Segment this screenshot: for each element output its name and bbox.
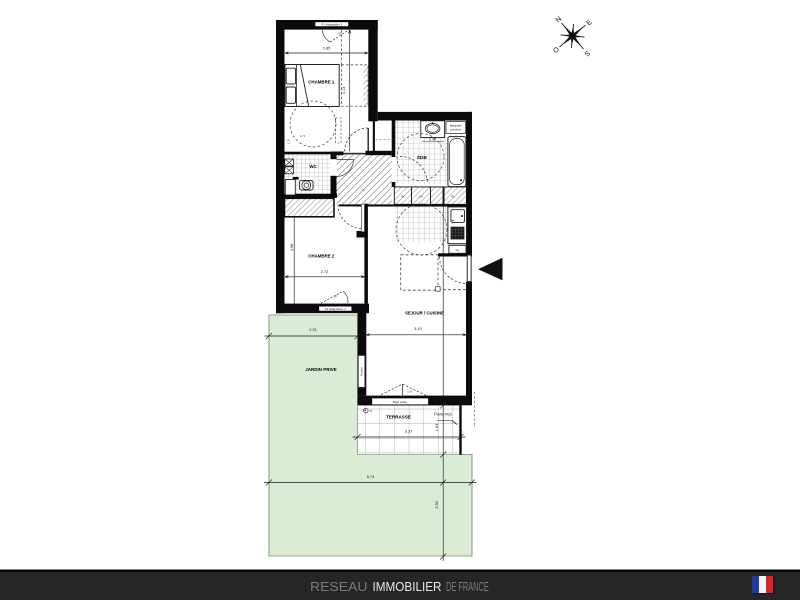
svg-text:CHAMBRE 2: CHAMBRE 2: [308, 254, 335, 259]
svg-text:F1 Adaptation 1: F1 Adaptation 1: [321, 23, 342, 27]
svg-text:2.48: 2.48: [429, 138, 435, 142]
svg-text:penderie: penderie: [450, 128, 461, 132]
svg-text:CU: CU: [419, 195, 423, 199]
svg-text:JARDIN PRIVE: JARDIN PRIVE: [305, 367, 337, 372]
svg-text:SDB: SDB: [417, 155, 428, 161]
svg-text:2.91: 2.91: [309, 328, 316, 332]
svg-text:CHAMBRE 1: CHAMBRE 1: [308, 79, 335, 84]
svg-text:Fenêtre: Fenêtre: [359, 366, 363, 375]
svg-text:PL: PL: [401, 195, 405, 199]
svg-text:1.37: 1.37: [286, 138, 290, 144]
svg-text:IMMOBILIER: IMMOBILIER: [373, 580, 442, 594]
svg-text:6.74: 6.74: [367, 475, 374, 479]
svg-text:RESEAU: RESEAU: [310, 580, 368, 594]
svg-text:F2 Adaptation 1: F2 Adaptation 1: [325, 307, 346, 311]
svg-text:PL: PL: [451, 195, 455, 199]
svg-text:Barquette: Barquette: [450, 123, 462, 127]
svg-text:WC: WC: [309, 164, 317, 169]
svg-text:1.63: 1.63: [435, 424, 439, 431]
svg-text:Fg: Fg: [456, 248, 460, 252]
svg-text:3.50: 3.50: [435, 501, 439, 508]
svg-text:3.10: 3.10: [414, 327, 421, 331]
svg-text:1.80: 1.80: [408, 390, 414, 394]
svg-text:2.85: 2.85: [323, 47, 330, 51]
svg-text:4.13: 4.13: [342, 87, 346, 94]
svg-text:TERRASSE: TERRASSE: [386, 415, 411, 420]
svg-text:Baie vitrée: Baie vitrée: [393, 400, 408, 404]
svg-text:2.72: 2.72: [321, 270, 328, 274]
svg-text:1.71: 1.71: [300, 134, 306, 138]
svg-text:SEJOUR / CUISINE: SEJOUR / CUISINE: [405, 311, 444, 316]
svg-text:3F: 3F: [369, 409, 372, 413]
svg-text:3.37: 3.37: [405, 429, 412, 433]
svg-text:3.98: 3.98: [290, 244, 294, 251]
svg-text:DE FRANCE: DE FRANCE: [446, 580, 489, 594]
